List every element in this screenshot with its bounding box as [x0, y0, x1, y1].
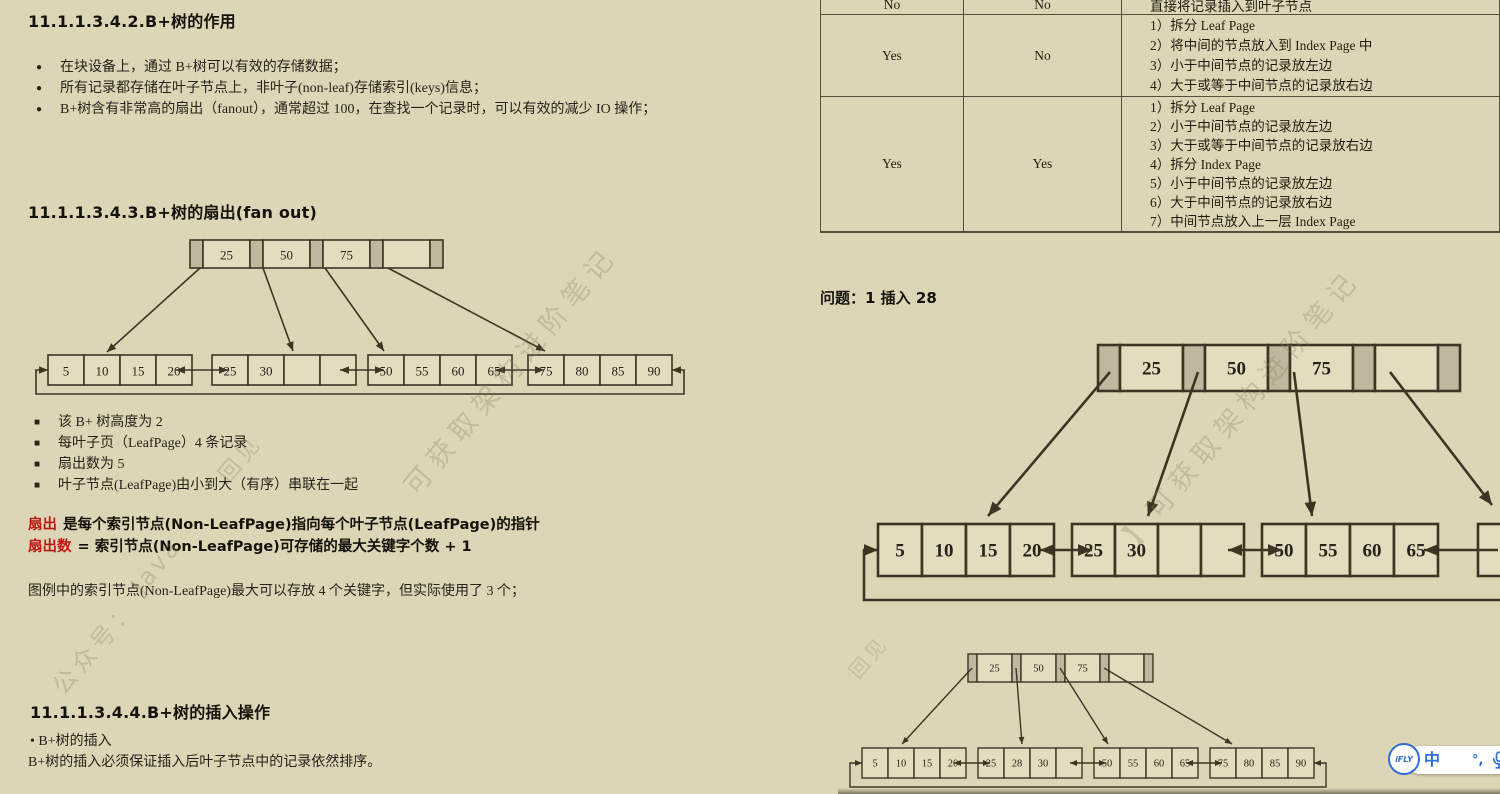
- key-cell: [440, 355, 476, 385]
- cell-value: 50: [380, 364, 393, 379]
- list-item: ●所有记录都存储在叶子节点上，非叶子(non-leaf)存储索引(keys)信息…: [36, 78, 684, 99]
- list-item: ■每叶子页（LeafPage）4 条记录: [34, 433, 694, 454]
- key-cell: [1205, 345, 1268, 391]
- definition-term: 扇出: [28, 517, 57, 533]
- moon-icon[interactable]: [1447, 751, 1465, 769]
- cell-value: 55: [1319, 541, 1338, 562]
- cell-value: 10: [935, 541, 954, 562]
- arrowhead: [375, 366, 384, 374]
- key-cell: [888, 748, 914, 778]
- cell-value: 30: [260, 364, 273, 379]
- pointer-cell: [1353, 345, 1375, 391]
- table-cell-leaf-full: Yes: [821, 15, 963, 96]
- question-title: 问题：1 插入 28: [820, 287, 937, 308]
- key-cell: [263, 240, 310, 268]
- cell-value: 20: [1023, 541, 1042, 562]
- tree-arrow: [107, 268, 200, 352]
- arrowhead: [286, 341, 296, 352]
- operation-step: 1）拆分 Leaf Page: [1150, 16, 1255, 36]
- table-cell-operations: 直接将记录插入到叶子节点: [1121, 0, 1499, 15]
- key-cell: [212, 355, 248, 385]
- tree-arrow: [864, 550, 1500, 600]
- arrowhead: [39, 366, 48, 374]
- split-operations-table: NoNo直接将记录插入到叶子节点YesNo1）拆分 Leaf Page2）将中间…: [820, 0, 1500, 233]
- chinese-mode-icon[interactable]: 中: [1424, 752, 1440, 768]
- arrowhead: [864, 544, 878, 556]
- list-item-text: 该 B+ 树高度为 2: [58, 412, 163, 433]
- cell-value: 15: [132, 364, 145, 379]
- key-cell: [878, 524, 922, 576]
- key-cell: [977, 654, 1012, 682]
- arrowhead: [176, 366, 185, 374]
- table-cell-leaf-full: No: [821, 0, 963, 15]
- cell-value: 65: [1180, 759, 1191, 770]
- operation-step: 4）大于或等于中间节点的记录放右边: [1150, 76, 1373, 96]
- cell-value: 60: [1363, 541, 1382, 562]
- key-cell: [636, 355, 672, 385]
- cell-value: 25: [986, 759, 997, 770]
- cell-value: 90: [648, 364, 661, 379]
- key-cell: [1021, 654, 1056, 682]
- key-cell: [368, 355, 404, 385]
- tree-arrow: [850, 763, 1326, 787]
- cell-value: 55: [416, 364, 429, 379]
- arrowhead: [1040, 544, 1054, 556]
- key-cell: [1306, 524, 1350, 576]
- section-heading-fanout: 11.1.1.3.4.3.B+树的扇出(fan out): [28, 199, 317, 223]
- cell-value: 15: [979, 541, 998, 562]
- table-cell-index-full: No: [963, 0, 1121, 15]
- key-cell: [1262, 748, 1288, 778]
- arrowhead: [376, 341, 387, 353]
- pointer-cell: [1056, 654, 1065, 682]
- bullet-square-icon: ■: [34, 475, 58, 496]
- tree-arrow: [902, 668, 972, 744]
- list-item-text: 扇出数为 5: [58, 454, 125, 475]
- pointer-cell: [1438, 345, 1460, 391]
- key-cell: [476, 355, 512, 385]
- tree-arrow: [1104, 668, 1232, 744]
- list-item-text: 所有记录都存储在叶子节点上，非叶子(non-leaf)存储索引(keys)信息；: [60, 78, 487, 99]
- moon-glyph: [1447, 751, 1465, 769]
- arrowhead: [496, 366, 505, 374]
- key-cell: [1236, 748, 1262, 778]
- cell-value: 20: [168, 364, 181, 379]
- operation-step: 3）大于或等于中间节点的记录放右边: [1150, 136, 1373, 155]
- arrowhead: [1186, 760, 1193, 766]
- key-cell: [1201, 524, 1244, 576]
- list-item: ■扇出数为 5: [34, 454, 694, 475]
- cell-value: 30: [1127, 541, 1146, 562]
- tree-arrow: [988, 372, 1110, 516]
- key-cell: [1262, 524, 1306, 576]
- table-cell-operations: 1）拆分 Leaf Page2）小于中间节点的记录放左边3）大于或等于中间节点的…: [1121, 97, 1499, 231]
- cell-value: 55: [1128, 759, 1139, 770]
- arrowhead: [983, 760, 990, 766]
- cell-value: 10: [96, 364, 109, 379]
- cell-value: 5: [895, 541, 905, 562]
- bullet-square-icon: ■: [34, 412, 58, 433]
- key-cell: [914, 748, 940, 778]
- arrowhead: [219, 366, 228, 374]
- key-cell: [1478, 524, 1500, 576]
- key-cell: [320, 355, 356, 385]
- bullet-square-icon: ■: [34, 454, 58, 475]
- list-item-text: B+树含有非常高的扇出（fanout），通常超过 100，在查找一个记录时，可以…: [60, 99, 656, 120]
- key-cell: [1288, 748, 1314, 778]
- key-cell: [120, 355, 156, 385]
- cell-value: 25: [1142, 359, 1161, 380]
- cell-value: 25: [989, 664, 1000, 675]
- cell-value: 85: [612, 364, 625, 379]
- cell-value: 25: [220, 248, 233, 263]
- arrowhead: [1215, 760, 1222, 766]
- cell-value: 50: [1033, 664, 1044, 675]
- operation-step: 4）拆分 Index Page: [1150, 155, 1261, 174]
- key-cell: [1010, 524, 1054, 576]
- arrowhead: [1070, 760, 1077, 766]
- arrowhead: [1304, 501, 1317, 516]
- key-cell: [1350, 524, 1394, 576]
- table-cell-index-full: Yes: [963, 97, 1121, 231]
- arrowhead: [535, 343, 546, 354]
- key-cell: [404, 355, 440, 385]
- cell-value: 75: [1077, 664, 1088, 675]
- operation-step: 7）中间节点放入上一层 Index Page: [1150, 212, 1355, 231]
- arrowhead: [1314, 760, 1321, 766]
- cell-value: 20: [948, 759, 959, 770]
- cell-value: 75: [1312, 359, 1331, 380]
- list-item-text: 在块设备上，通过 B+树可以有效的存储数据；: [60, 57, 347, 78]
- key-cell: [248, 355, 284, 385]
- cell-value: 50: [1227, 359, 1246, 380]
- cell-value: 5: [872, 759, 877, 770]
- key-cell: [1004, 748, 1030, 778]
- arrowhead: [1142, 501, 1158, 518]
- table-row: YesYes1）拆分 Leaf Page2）小于中间节点的记录放左边3）大于或等…: [821, 97, 1499, 231]
- cell-value: 75: [540, 364, 553, 379]
- insert-description: B+树的插入必须保证插入后叶子节点中的记录依然排序。: [28, 751, 381, 771]
- operation-step: 2）将中间的节点放入到 Index Page 中: [1150, 36, 1372, 56]
- key-cell: [1375, 345, 1438, 391]
- arrowhead: [1479, 490, 1497, 508]
- arrowhead: [340, 366, 349, 374]
- cell-value: 25: [1084, 541, 1103, 562]
- cell-value: 65: [488, 364, 501, 379]
- key-cell: [1290, 345, 1353, 391]
- bullet-dot-icon: ●: [36, 99, 60, 120]
- cell-value: 90: [1296, 759, 1307, 770]
- operation-step: 直接将记录插入到叶子节点: [1150, 0, 1312, 15]
- watermark-text: 回见: [841, 628, 894, 683]
- tree-arrow: [1060, 668, 1108, 744]
- tree-arrow: [388, 268, 545, 351]
- punctuation-icon[interactable]: °,: [1472, 754, 1483, 767]
- key-cell: [323, 240, 370, 268]
- pointer-cell: [1268, 345, 1290, 391]
- microphone-icon[interactable]: [1490, 751, 1500, 769]
- tree-arrow: [325, 268, 384, 351]
- tree-arrow: [1016, 668, 1022, 744]
- arrowhead: [104, 343, 116, 355]
- definition-text: = 索引节点(Non-LeafPage)可存储的最大关键字个数 + 1: [78, 539, 472, 555]
- fanout-note: 图例中的索引节点(Non-LeafPage)最大可以存放 4 个关键字，但实际使…: [28, 580, 525, 600]
- key-cell: [1056, 748, 1082, 778]
- arrowhead: [983, 501, 1001, 519]
- page-bottom-shadow: [838, 788, 1500, 794]
- tree-arrow: [263, 268, 293, 351]
- list-item-text: 叶子节点(LeafPage)由小到大（有序）串联在一起: [58, 475, 358, 496]
- key-cell: [1146, 748, 1172, 778]
- key-cell: [1394, 524, 1438, 576]
- key-cell: [1109, 654, 1144, 682]
- watermark-text: 】可获取架构进阶笔记: [1113, 259, 1368, 552]
- arrowhead: [954, 760, 961, 766]
- fanout-facts-list: ■该 B+ 树高度为 2■每叶子页（LeafPage）4 条记录■扇出数为 5■…: [34, 412, 694, 496]
- key-cell: [1115, 524, 1158, 576]
- list-item: ■叶子节点(LeafPage)由小到大（有序）串联在一起: [34, 475, 694, 496]
- bullet-square-icon: ■: [34, 433, 58, 454]
- key-cell: [1120, 748, 1146, 778]
- operation-step: 1）拆分 Leaf Page: [1150, 98, 1255, 117]
- cell-value: 80: [1244, 759, 1255, 770]
- key-cell: [48, 355, 84, 385]
- arrowhead: [1224, 738, 1233, 747]
- tree-arrow: [1294, 372, 1312, 516]
- cell-value: 50: [1102, 759, 1113, 770]
- arrowhead: [855, 760, 862, 766]
- arrowhead: [1099, 760, 1106, 766]
- list-item-text: 每叶子页（LeafPage）4 条记录: [58, 433, 247, 454]
- key-cell: [1158, 524, 1201, 576]
- cell-value: 15: [922, 759, 933, 770]
- pointer-cell: [1183, 345, 1205, 391]
- key-cell: [528, 355, 564, 385]
- pointer-cell: [1098, 345, 1120, 391]
- pointer-cell: [1100, 654, 1109, 682]
- cell-value: 60: [452, 364, 465, 379]
- cell-value: 75: [1218, 759, 1229, 770]
- cell-value: 50: [1275, 541, 1294, 562]
- section-heading-purpose: 11.1.1.3.4.2.B+树的作用: [28, 8, 236, 32]
- operation-step: 5）小于中间节点的记录放左边: [1150, 174, 1332, 193]
- key-cell: [1072, 524, 1115, 576]
- tree-arrow: [36, 370, 684, 394]
- key-cell: [284, 355, 320, 385]
- list-item: ●在块设备上，通过 B+树可以有效的存储数据；: [36, 57, 684, 78]
- key-cell: [940, 748, 966, 778]
- key-cell: [1065, 654, 1100, 682]
- definition-text: 是每个索引节点(Non-LeafPage)指向每个叶子节点(LeafPage)的…: [63, 517, 540, 533]
- section-heading-insert: 11.1.1.3.4.4.B+树的插入操作: [30, 699, 270, 723]
- cell-value: 28: [1012, 759, 1023, 770]
- list-item: ●B+树含有非常高的扇出（fanout），通常超过 100，在查找一个记录时，可…: [36, 99, 684, 120]
- key-cell: [1172, 748, 1198, 778]
- arrowhead: [1228, 544, 1242, 556]
- insert-subtitle: • B+树的插入: [30, 730, 112, 750]
- fanout-definitions: 扇出是每个索引节点(Non-LeafPage)指向每个叶子节点(LeafPage…: [28, 514, 540, 558]
- pointer-cell: [370, 240, 383, 268]
- cell-value: 60: [1154, 759, 1165, 770]
- cell-value: 75: [340, 248, 353, 263]
- key-cell: [966, 524, 1010, 576]
- arrowhead: [1268, 544, 1282, 556]
- tree-arrow: [1390, 372, 1492, 505]
- key-cell: [156, 355, 192, 385]
- ime-logo-icon[interactable]: iFLY: [1388, 743, 1420, 775]
- microphone-glyph: [1490, 751, 1500, 769]
- purpose-bullet-list: ●在块设备上，通过 B+树可以有效的存储数据；●所有记录都存储在叶子节点上，非叶…: [36, 57, 684, 120]
- pointer-cell: [310, 240, 323, 268]
- cell-value: 85: [1270, 759, 1281, 770]
- cell-value: 25: [224, 364, 237, 379]
- definition-line: 扇出是每个索引节点(Non-LeafPage)指向每个叶子节点(LeafPage…: [28, 514, 540, 536]
- document-page: { "page": { "background": "#ddd6b6", "in…: [0, 0, 1500, 794]
- key-cell: [84, 355, 120, 385]
- pointer-cell: [1144, 654, 1153, 682]
- key-cell: [978, 748, 1004, 778]
- key-cell: [1030, 748, 1056, 778]
- pointer-cell: [430, 240, 443, 268]
- cell-value: 65: [1407, 541, 1426, 562]
- table-cell-operations: 1）拆分 Leaf Page2）将中间的节点放入到 Index Page 中3）…: [1121, 15, 1499, 96]
- cell-value: 5: [63, 364, 70, 379]
- key-cell: [1094, 748, 1120, 778]
- arrowhead: [900, 737, 909, 746]
- pointer-cell: [190, 240, 203, 268]
- arrowhead: [1078, 544, 1092, 556]
- table-row: YesNo1）拆分 Leaf Page2）将中间的节点放入到 Index Pag…: [821, 15, 1499, 97]
- pointer-cell: [1012, 654, 1021, 682]
- key-cell: [383, 240, 430, 268]
- cell-value: 80: [576, 364, 589, 379]
- watermark-text: 公众号：: [43, 589, 144, 700]
- table-cell-leaf-full: Yes: [821, 97, 963, 231]
- pointer-cell: [968, 654, 977, 682]
- pointer-cell: [250, 240, 263, 268]
- cell-value: 10: [896, 759, 907, 770]
- bullet-dot-icon: ●: [36, 57, 60, 78]
- key-cell: [1210, 748, 1236, 778]
- key-cell: [564, 355, 600, 385]
- tree-arrow: [1148, 372, 1198, 516]
- cell-value: 30: [1038, 759, 1049, 770]
- key-cell: [922, 524, 966, 576]
- operation-step: 2）小于中间节点的记录放左边: [1150, 117, 1332, 136]
- operation-step: 6）大于中间节点的记录放右边: [1150, 193, 1332, 212]
- definition-line: 扇出数= 索引节点(Non-LeafPage)可存储的最大关键字个数 + 1: [28, 536, 540, 558]
- cell-value: 50: [280, 248, 293, 263]
- bullet-dot-icon: ●: [36, 78, 60, 99]
- definition-term: 扇出数: [28, 539, 72, 555]
- table-row: NoNo直接将记录插入到叶子节点: [821, 0, 1499, 15]
- ime-button-bar[interactable]: 中°,: [1406, 746, 1500, 774]
- list-item: ■该 B+ 树高度为 2: [34, 412, 694, 433]
- operation-step: 3）小于中间节点的记录放左边: [1150, 56, 1332, 76]
- key-cell: [203, 240, 250, 268]
- key-cell: [600, 355, 636, 385]
- table-cell-index-full: No: [963, 15, 1121, 96]
- arrowhead: [1424, 544, 1438, 556]
- arrowhead: [1102, 737, 1111, 746]
- arrowhead: [672, 366, 681, 374]
- key-cell: [1120, 345, 1183, 391]
- key-cell: [862, 748, 888, 778]
- arrowhead: [535, 366, 544, 374]
- arrowhead: [1018, 737, 1024, 744]
